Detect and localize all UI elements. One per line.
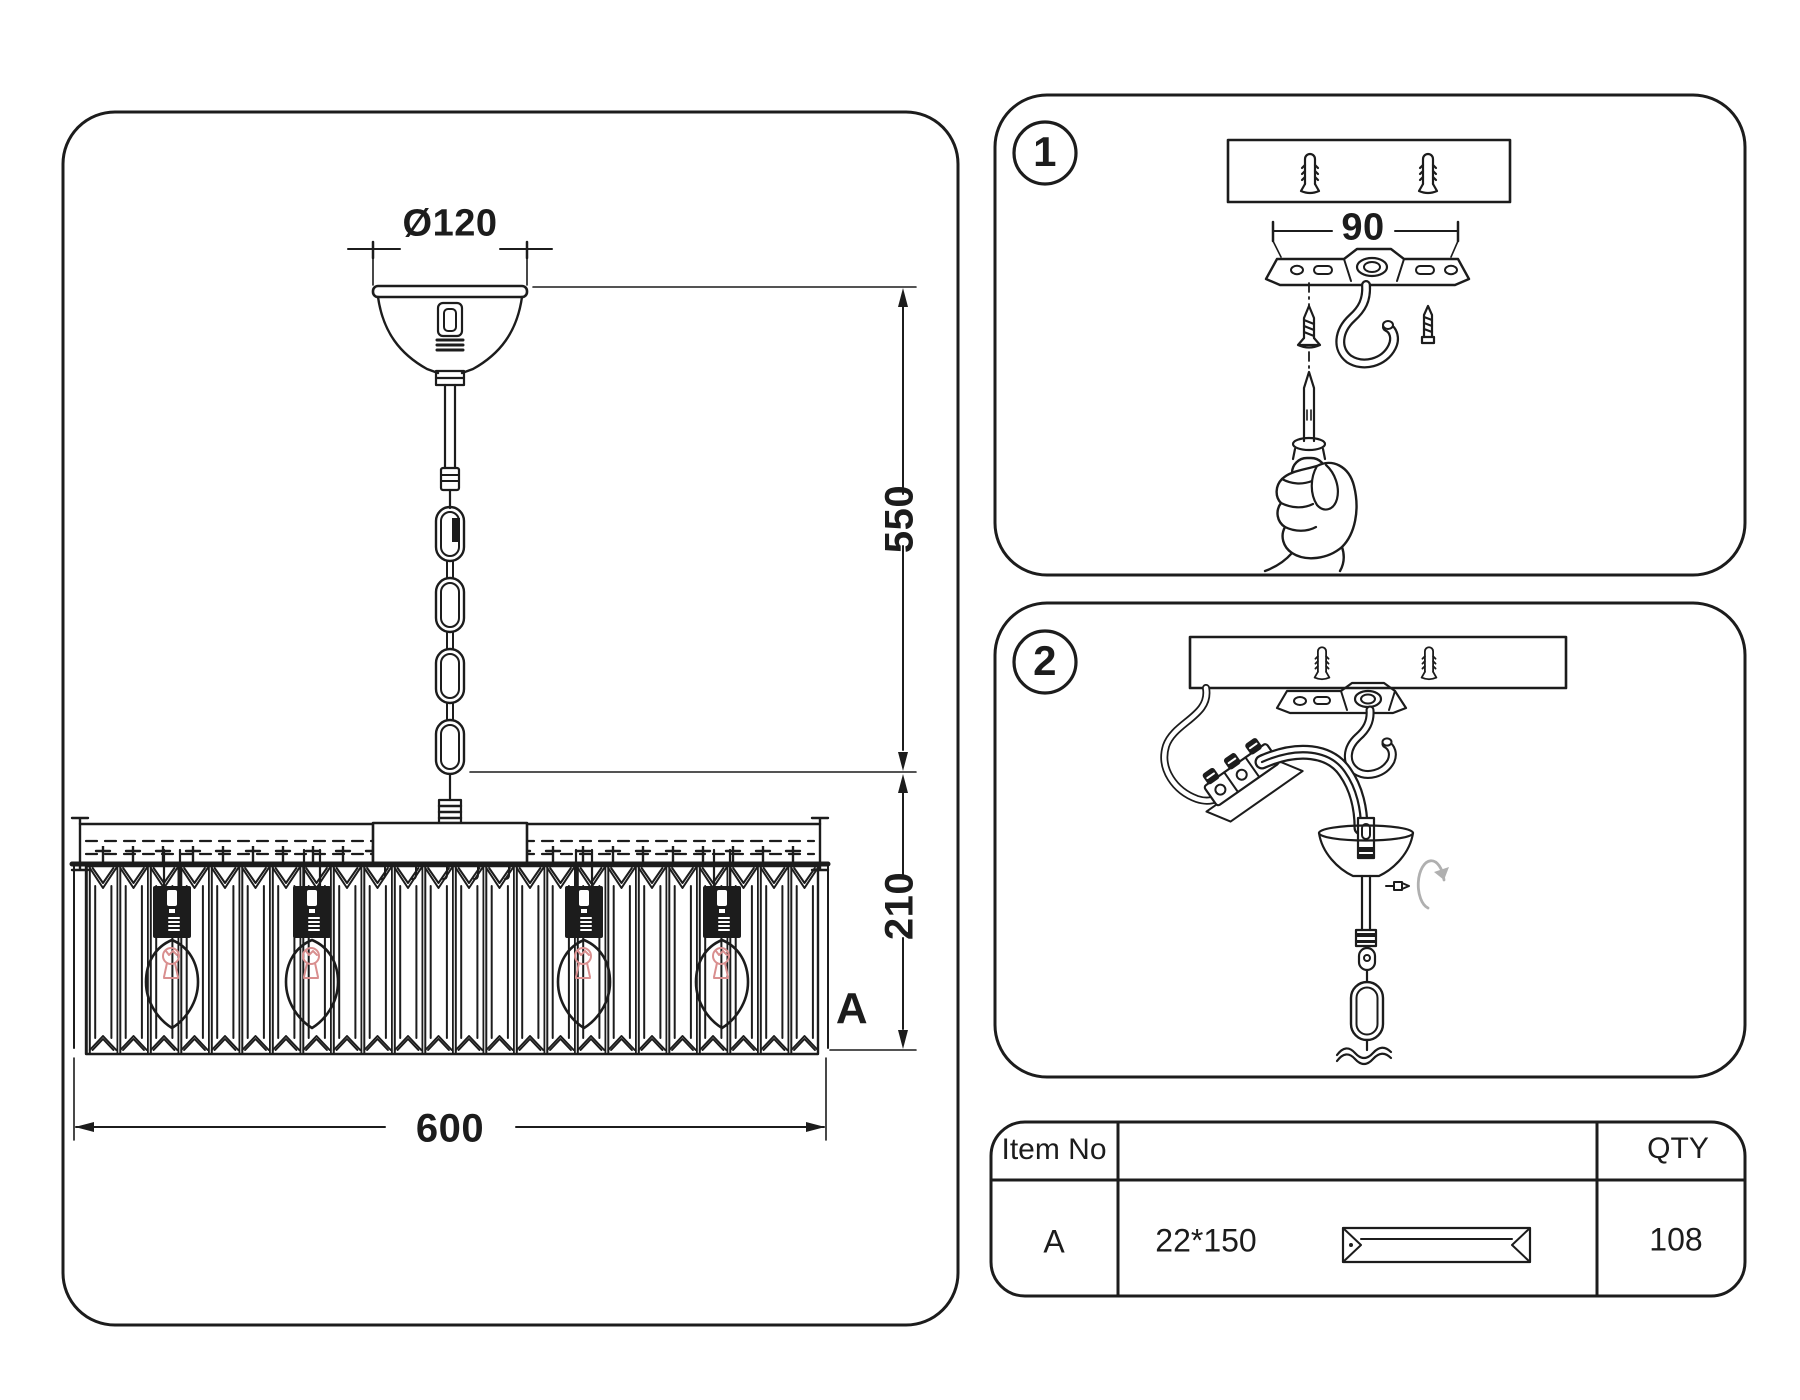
diagram-linework (0, 0, 1800, 1400)
table-cell-qty: 108 (1649, 1222, 1702, 1259)
instruction-sheet: Ø120 550 210 600 A 1 90 2 Item No QTY A … (0, 0, 1800, 1400)
rotation-arrow-icon (1418, 861, 1449, 908)
table-cell-size: 22*150 (1155, 1223, 1256, 1260)
crystal-prism-icon (1343, 1228, 1530, 1262)
table-cell-item-no: A (1043, 1224, 1064, 1261)
table-header-item-no: Item No (1001, 1133, 1106, 1167)
canopy-drawing (373, 286, 527, 508)
main-drawing-panel (63, 112, 958, 1325)
ceiling-hook-icon (1340, 285, 1394, 363)
ceiling-board (1190, 637, 1566, 688)
wall-plug-icon (1301, 154, 1319, 193)
dim-shade-width: 600 (416, 1107, 484, 1152)
crystal-label-a: A (836, 984, 868, 1034)
wall-plug-icon (1422, 647, 1437, 679)
wall-plug-icon (1315, 647, 1330, 679)
wood-screw-icon (1298, 306, 1320, 348)
mounting-plate (1266, 249, 1469, 285)
dim-canopy-diameter: Ø120 (403, 203, 498, 246)
step1-number: 1 (1033, 128, 1057, 176)
hand-with-awl (1265, 372, 1357, 571)
ceiling-board (1228, 140, 1510, 202)
suspension-chain-drawing (436, 507, 464, 823)
step2-panel (995, 603, 1745, 1077)
wood-screw-icon (1422, 306, 1434, 343)
set-screw-icon (1386, 882, 1409, 890)
ceiling-hook-icon (1348, 710, 1392, 774)
dim-hang-height: 550 (878, 485, 923, 553)
dim-plate-width: 90 (1341, 207, 1384, 250)
table-header-qty: QTY (1647, 1132, 1709, 1166)
step2-number: 2 (1033, 637, 1057, 685)
terminal-block (1188, 726, 1303, 830)
step1-panel (995, 95, 1745, 575)
dim-shade-height: 210 (878, 872, 923, 940)
wall-plug-icon (1419, 154, 1437, 193)
break-squiggle (1337, 1048, 1391, 1064)
canopy-assembly (1319, 818, 1449, 1064)
shade-hub (373, 823, 527, 864)
